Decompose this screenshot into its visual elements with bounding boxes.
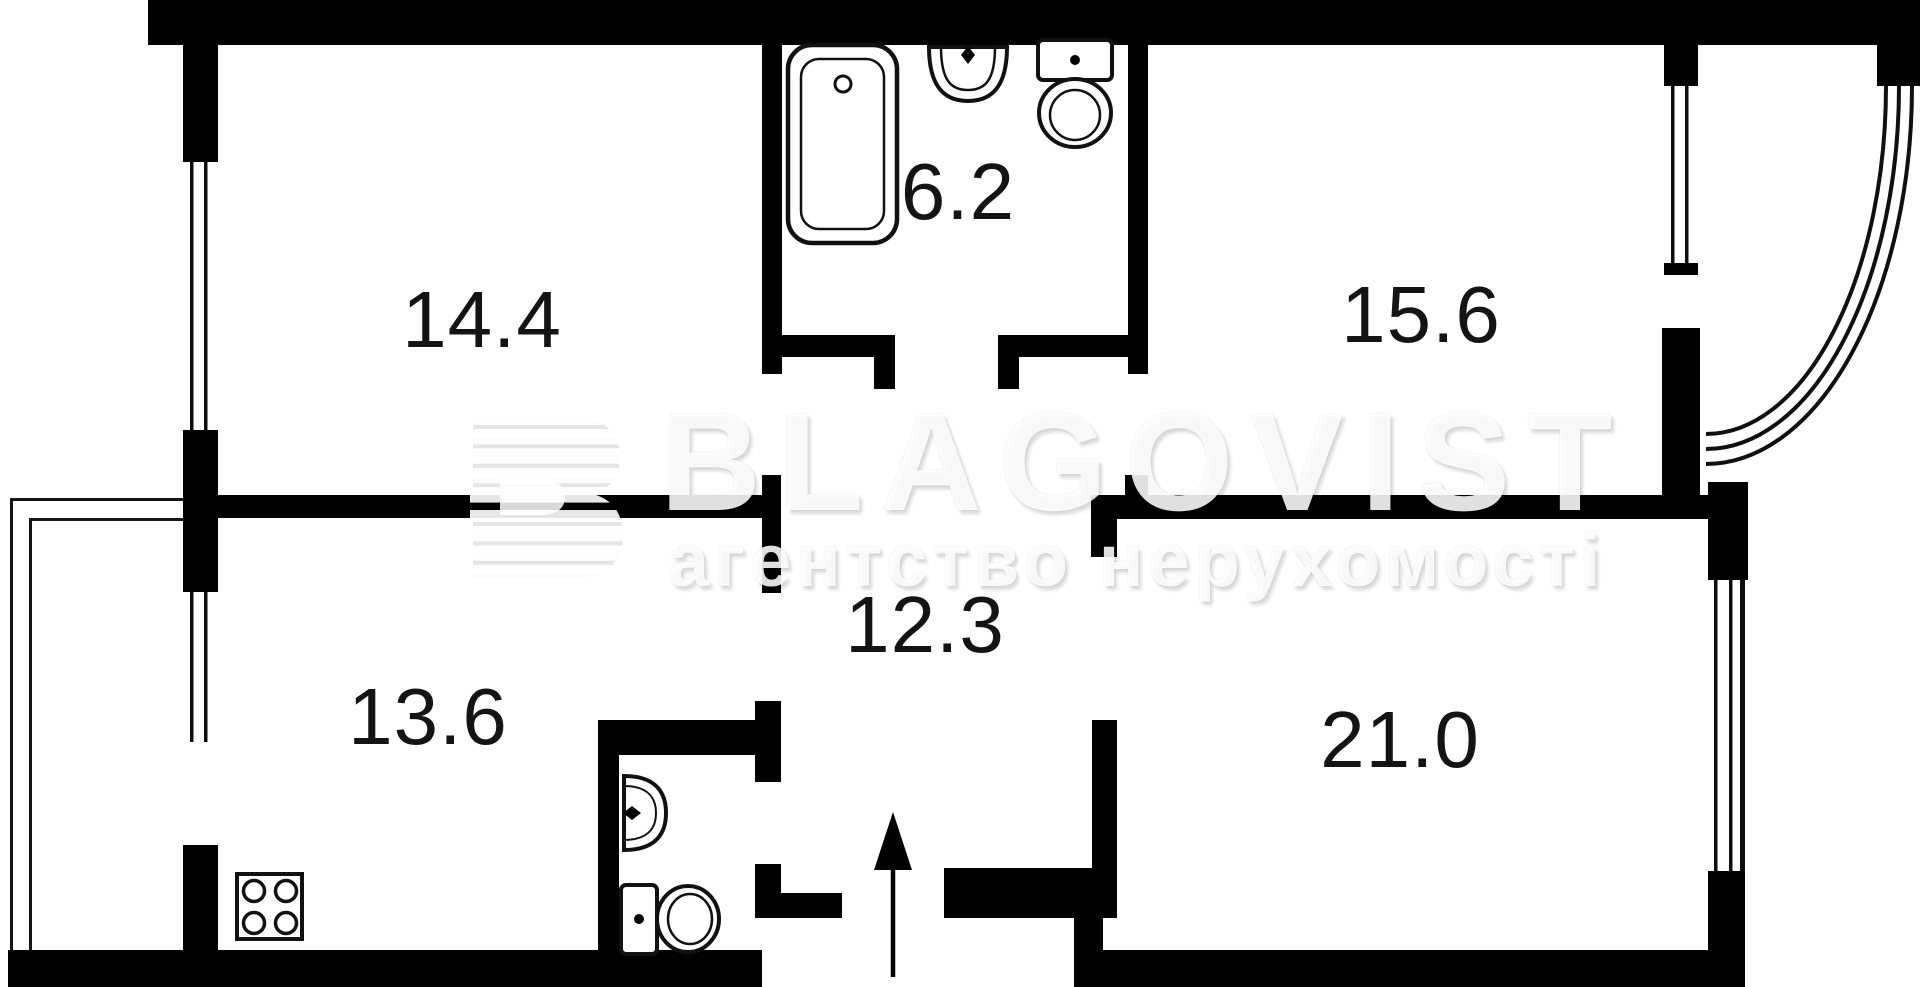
wall-interior-right	[1091, 495, 1708, 519]
bathtub-icon	[788, 45, 897, 243]
wall-left-upper	[183, 0, 218, 162]
room-label-15-6: 15.6	[1341, 275, 1501, 355]
room-label-6-2: 6.2	[901, 152, 1015, 232]
wall-jamb-hall	[1091, 519, 1117, 557]
wall-top	[148, 0, 1920, 45]
wall-right-lower	[1708, 871, 1745, 987]
wall-bottom-right	[1074, 950, 1745, 987]
wall-entry-right-foot	[1074, 918, 1103, 952]
wall-bathroom-bottom-left	[762, 335, 895, 357]
room-label-13-6: 13.6	[348, 677, 508, 757]
window-room14	[183, 162, 218, 430]
window-room21	[1708, 580, 1745, 871]
stove-icon	[237, 874, 302, 939]
wc-sink-icon	[623, 776, 666, 850]
bathroom-sink-icon	[929, 46, 1007, 101]
wall-right-corner-block	[1708, 482, 1748, 580]
wall-left-middle	[183, 430, 218, 592]
wall-entry-jamb-left	[755, 864, 781, 918]
wall-wc-top	[598, 720, 771, 755]
wall-top-right-corner	[1877, 0, 1920, 86]
window-kitchen	[183, 592, 218, 742]
wall-jamb-room15-door	[1125, 475, 1148, 495]
wall-bathroom-bottom-right	[998, 335, 1148, 357]
wall-bathroom-left	[762, 45, 782, 374]
room-label-14-4: 14.4	[402, 280, 562, 360]
wall-bathroom-right	[1128, 45, 1148, 374]
room-label-12-3: 12.3	[845, 585, 1005, 665]
wall-bay-window-stub	[1664, 45, 1698, 86]
wall-entry-right	[944, 868, 1117, 918]
wall-interior-left	[216, 495, 781, 518]
wall-bay-window-cap	[1664, 263, 1698, 275]
wall-bathroom-door-jamb-left	[874, 357, 895, 389]
floor-plan: 14.4 6.2 15.6 12.3 13.6 21.0	[0, 0, 1920, 987]
wc-toilet-icon	[621, 885, 719, 954]
room-label-21-0: 21.0	[1320, 700, 1480, 780]
window-bay	[1664, 86, 1698, 263]
bathroom-toilet-icon	[1038, 40, 1112, 147]
wall-hall-room21	[1092, 720, 1117, 870]
wall-hall-kitchen-upper	[762, 475, 781, 593]
wall-bay-side	[1662, 328, 1700, 516]
wall-bathroom-door-jamb-right	[998, 357, 1019, 389]
wall-entry-jamb-left-foot	[781, 893, 842, 918]
